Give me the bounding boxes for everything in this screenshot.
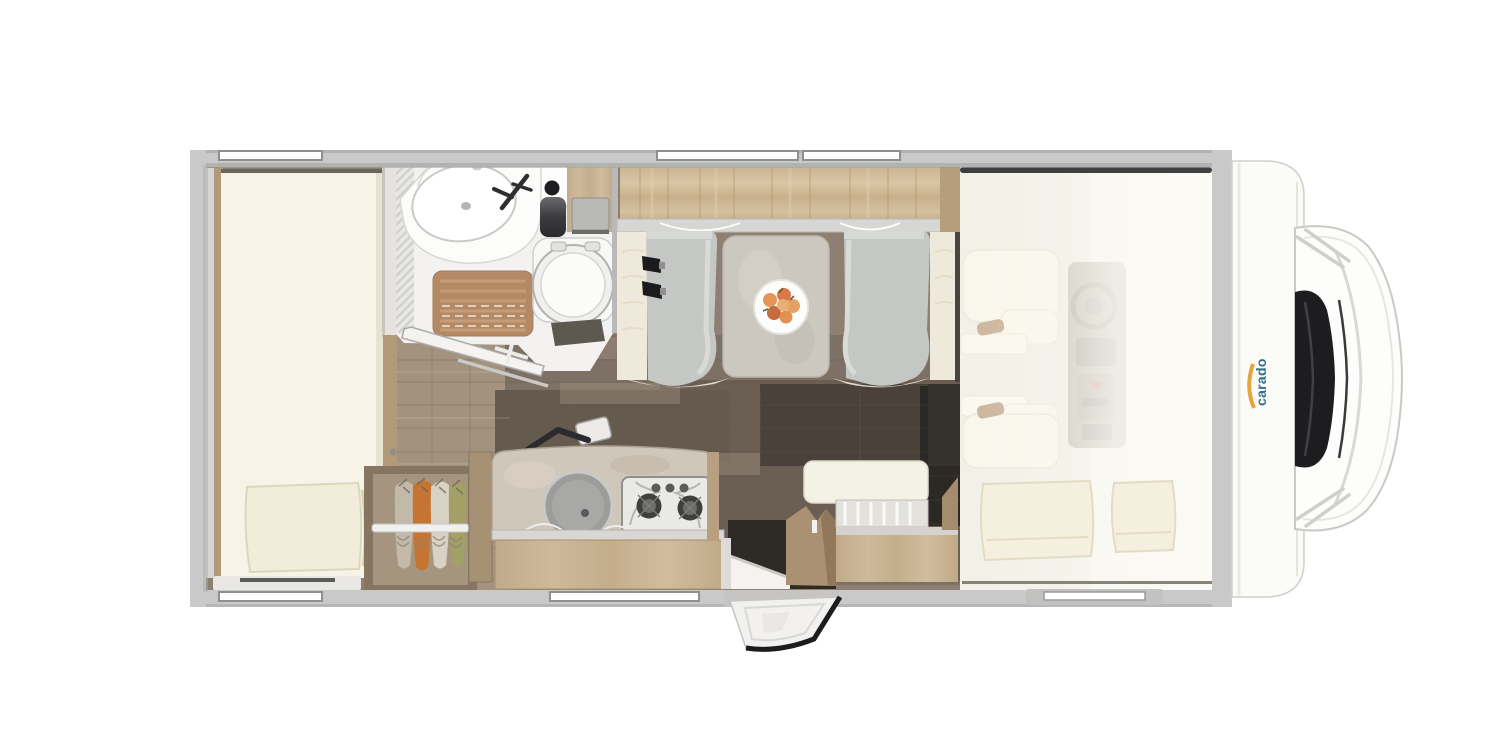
- svg-text:carado: carado: [1253, 358, 1269, 406]
